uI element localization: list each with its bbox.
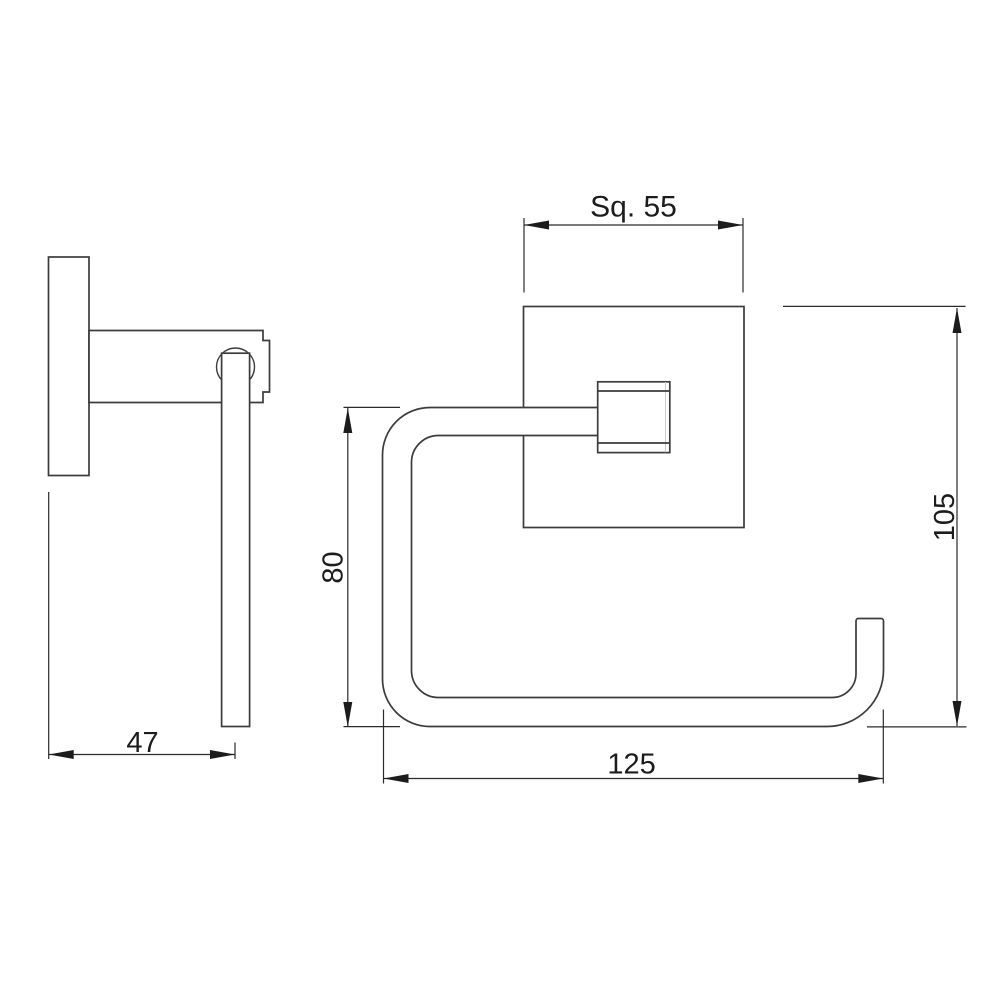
- svg-text:47: 47: [126, 727, 158, 759]
- svg-text:80: 80: [318, 551, 350, 583]
- svg-text:Sq. 55: Sq. 55: [590, 191, 677, 224]
- svg-text:105: 105: [929, 493, 961, 541]
- svg-text:125: 125: [607, 749, 655, 781]
